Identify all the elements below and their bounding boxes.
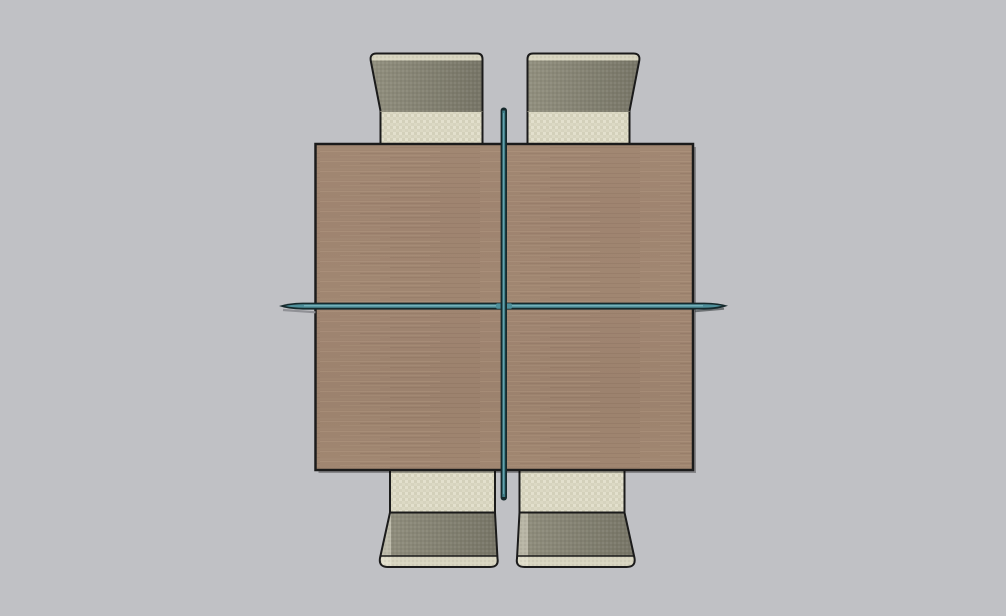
viewport [0, 0, 1006, 616]
chair-backrest [524, 50, 646, 117]
chair-backrest [374, 509, 503, 569]
chair-backrest [511, 509, 640, 569]
chair-backrest [364, 50, 486, 117]
chair-top-left[interactable] [364, 50, 486, 145]
chair-seat-cushion [520, 468, 625, 514]
support-pole-highlight [503, 113, 504, 494]
chair-seat-cushion [528, 108, 630, 145]
chair-top-right[interactable] [524, 50, 646, 145]
chair-seat-cushion [390, 468, 495, 514]
support-pole[interactable] [501, 108, 507, 501]
chair-bottom-right[interactable] [511, 468, 640, 569]
chair-bottom-left[interactable] [374, 468, 503, 569]
chair-seat-cushion [381, 108, 483, 145]
scene-canvas [0, 0, 1006, 616]
